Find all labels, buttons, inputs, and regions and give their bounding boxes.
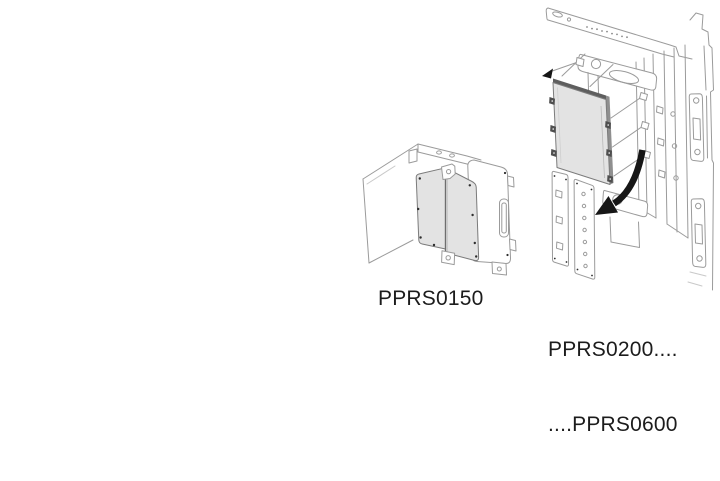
label-line-2: ....PPRS0600 [548,412,678,437]
figure-label-pprs0150: PPRS0150 [378,286,484,311]
strip-square-holes [552,171,568,266]
plate-handle [500,199,509,237]
installation-diagram-page: PPRS0150 PPRS0200.... ....PPRS0600 [0,0,720,481]
frame-crossbar [578,54,657,90]
figure-pprs0150 [355,133,530,293]
alignment-arrowhead [542,69,553,79]
pprs0200-0600-illustration [540,0,720,300]
blanking-panel [549,79,613,185]
bottom-hinge-bracket [442,251,455,265]
pprs0150-illustration [355,133,530,293]
frame-latch-upper [689,94,704,162]
mounting-strips [552,171,595,279]
figure-label-pprs0200-0600: PPRS0200.... ....PPRS0600 [548,287,678,481]
top-rail [546,8,692,59]
label-line-1: PPRS0200.... [548,337,678,362]
figure-pprs0200-0600 [540,0,720,300]
